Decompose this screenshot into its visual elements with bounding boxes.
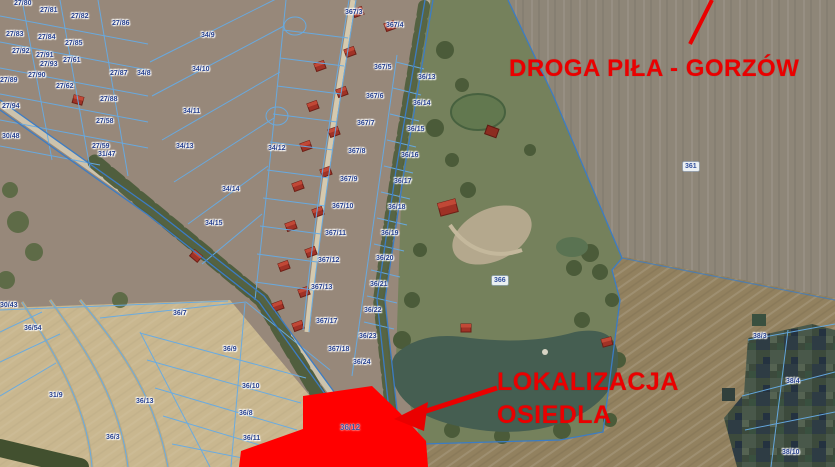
parcel-label: 367/5 xyxy=(374,64,392,71)
parcel-label: 27/88 xyxy=(100,96,118,103)
parcel-label: 36/23 xyxy=(359,333,377,340)
parcel-label: 38/4 xyxy=(786,378,800,385)
parcel-label: 38/3 xyxy=(753,333,767,340)
parcel-label: 36/20 xyxy=(376,255,394,262)
parcel-label: 361 xyxy=(683,162,699,171)
parcel-label: 34/12 xyxy=(268,145,286,152)
location-annotation-line2: OSIEDLA xyxy=(497,401,612,430)
parcel-label: 36/16 xyxy=(401,152,419,159)
parcel-label: 27/61 xyxy=(63,57,81,64)
parcel-label: 30/48 xyxy=(2,133,20,140)
parcel-label: 34/14 xyxy=(222,186,240,193)
parcel-label: 36/15 xyxy=(407,126,425,133)
parcel-label: 36/11 xyxy=(243,435,260,442)
parcel-label: 36/7 xyxy=(173,310,187,317)
parcel-label: 36/13 xyxy=(418,74,436,81)
parcel-label: 30/43 xyxy=(0,302,18,309)
parcel-label: 367/12 xyxy=(318,257,339,264)
parcel-label: 27/80 xyxy=(14,0,32,7)
parcel-label: 367/3 xyxy=(345,9,363,16)
parcel-label: 366 xyxy=(492,276,508,285)
parcel-label: 27/89 xyxy=(0,77,18,84)
parcel-label: 27/59 xyxy=(92,143,110,150)
parcel-label: 27/62 xyxy=(56,83,74,90)
parcel-label: 27/91 xyxy=(36,52,54,59)
parcel-label: 27/82 xyxy=(71,13,89,20)
parcel-label: 367/6 xyxy=(366,93,384,100)
parcel-label: 34/13 xyxy=(176,143,194,150)
parcel-label: 367/4 xyxy=(386,22,404,29)
parcel-label: 27/85 xyxy=(65,40,83,47)
road-annotation-label: DROGA PIŁA - GORZÓW xyxy=(509,55,799,83)
parcel-label: 36/3 xyxy=(106,434,120,441)
parcel-label: 36/9 xyxy=(223,346,237,353)
location-annotation-line1: LOKALIZACJA xyxy=(497,368,679,397)
parcel-label: 34/11 xyxy=(183,108,200,115)
parcel-label: 27/87 xyxy=(110,70,128,77)
parcel-label: 36/21 xyxy=(370,281,388,288)
parcel-label: 36/8 xyxy=(239,410,253,417)
parcel-label: 367/18 xyxy=(328,346,349,353)
parcel-label: 27/81 xyxy=(40,7,58,14)
parcel-label: 36/19 xyxy=(381,230,399,237)
aerial-map-canvas[interactable]: 27/8027/8127/8227/8627/8327/8427/8527/92… xyxy=(0,0,835,467)
parcel-label: 27/93 xyxy=(40,61,58,68)
parcel-label: 27/83 xyxy=(6,31,24,38)
parcel-label: 367/10 xyxy=(332,203,353,210)
parcel-label: 367/9 xyxy=(340,176,358,183)
parcel-label: 27/90 xyxy=(28,72,46,79)
parcel-label: 36/13 xyxy=(136,398,154,405)
parcel-label: 27/86 xyxy=(112,20,130,27)
parcel-label: 367/13 xyxy=(311,284,332,291)
parcel-label: 36/14 xyxy=(413,100,431,107)
parcel-label: 36/24 xyxy=(353,359,371,366)
parcel-label: 36/10 xyxy=(242,383,260,390)
parcel-label: 367/11 xyxy=(325,230,346,237)
parcel-label: 34/9 xyxy=(201,32,215,39)
parcel-label: 36/22 xyxy=(364,307,382,314)
parcel-label: 367/17 xyxy=(316,318,337,325)
parcel-label: 38/10 xyxy=(782,449,800,456)
parcel-label: 36/17 xyxy=(394,178,412,185)
parcel-label: 31/47 xyxy=(98,151,116,158)
parcel-label: 36/18 xyxy=(388,204,406,211)
parcel-label: 36/54 xyxy=(24,325,42,332)
parcel-label: 27/58 xyxy=(96,118,114,125)
parcel-label: 367/7 xyxy=(357,120,375,127)
parcel-label: 34/15 xyxy=(205,220,223,227)
parcel-label: 27/92 xyxy=(12,48,30,55)
parcel-label: 36/12 xyxy=(340,424,360,432)
parcel-label: 27/84 xyxy=(38,34,56,41)
parcel-label: 34/10 xyxy=(192,66,210,73)
parcel-label: 27/94 xyxy=(2,103,20,110)
parcel-label: 31/9 xyxy=(49,392,63,399)
parcel-label: 367/8 xyxy=(348,148,366,155)
parcel-label: 34/8 xyxy=(137,70,151,77)
